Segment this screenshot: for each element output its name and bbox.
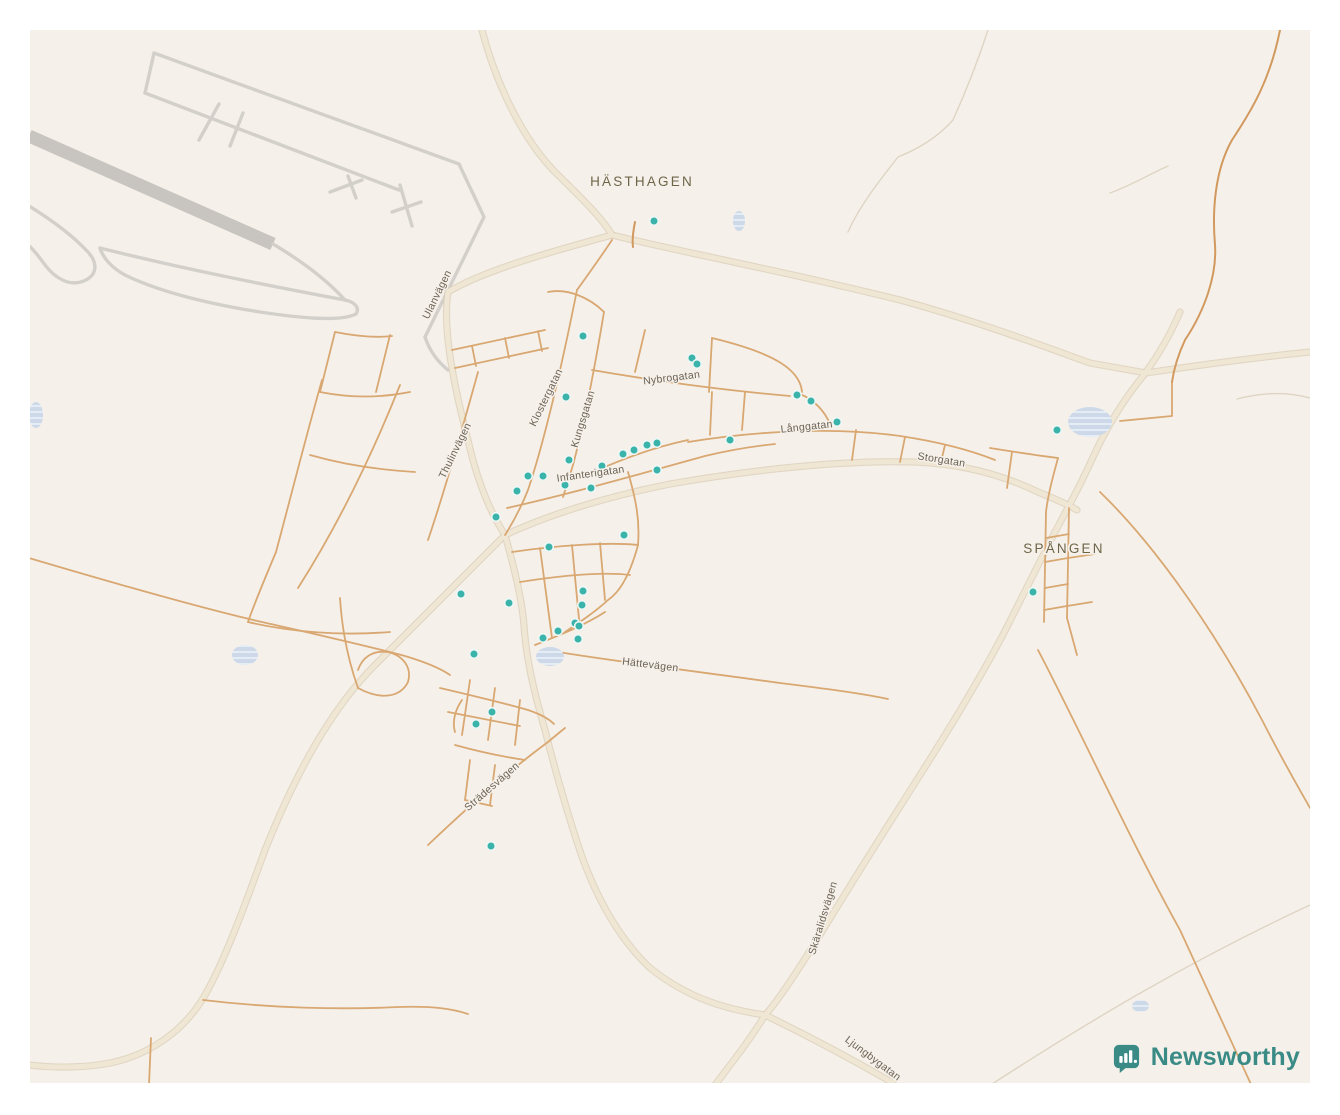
map-marker[interactable] xyxy=(579,587,588,596)
map-marker[interactable] xyxy=(505,599,514,608)
map-marker[interactable] xyxy=(574,635,583,644)
place-label: HÄSTHAGEN xyxy=(590,174,694,189)
map-markers-layer xyxy=(457,217,1062,851)
map-marker[interactable] xyxy=(487,842,496,851)
map-marker[interactable] xyxy=(545,543,554,552)
map-marker[interactable] xyxy=(470,650,479,659)
map-marker[interactable] xyxy=(587,484,596,493)
water-feature xyxy=(1132,1000,1149,1012)
street-label: Kungsgatan xyxy=(569,389,598,449)
map-page: UlanvägenThulinvägenKlostergatanKungsgat… xyxy=(0,0,1340,1115)
map-marker[interactable] xyxy=(619,450,628,459)
map-marker[interactable] xyxy=(726,436,735,445)
water-feature xyxy=(536,647,564,666)
water-feature xyxy=(1068,407,1112,437)
map-marker[interactable] xyxy=(578,601,587,610)
map-marker[interactable] xyxy=(539,472,548,481)
map-marker[interactable] xyxy=(575,622,584,631)
map-marker[interactable] xyxy=(693,360,702,369)
accent-roads-layer xyxy=(599,30,1280,382)
airport-runways xyxy=(30,53,484,370)
map-marker[interactable] xyxy=(554,627,563,636)
map-marker[interactable] xyxy=(524,472,533,481)
map-marker[interactable] xyxy=(833,418,842,427)
place-label: SPÅNGEN xyxy=(1023,541,1104,556)
hasthagen-paddock-oval xyxy=(599,148,693,231)
map-marker[interactable] xyxy=(650,217,659,226)
map-marker[interactable] xyxy=(513,487,522,496)
map-marker[interactable] xyxy=(643,441,652,450)
map-marker[interactable] xyxy=(1029,588,1038,597)
map-marker[interactable] xyxy=(488,708,497,717)
newsworthy-wordmark: Newsworthy xyxy=(1151,1043,1300,1072)
water-feature xyxy=(30,402,43,428)
map-marker[interactable] xyxy=(539,634,548,643)
map-marker[interactable] xyxy=(620,531,629,540)
street-label: Hättevägen xyxy=(621,656,679,675)
newsworthy-bar-chart-icon xyxy=(1111,1042,1142,1073)
map-marker[interactable] xyxy=(472,720,481,729)
map-marker[interactable] xyxy=(562,393,571,402)
map-marker[interactable] xyxy=(457,590,466,599)
map-marker[interactable] xyxy=(653,466,662,475)
map-marker[interactable] xyxy=(492,513,501,522)
water-feature xyxy=(232,645,258,665)
map-marker[interactable] xyxy=(807,397,816,406)
map-marker[interactable] xyxy=(565,456,574,465)
map-marker[interactable] xyxy=(653,439,662,448)
map-marker[interactable] xyxy=(793,391,802,400)
map-marker[interactable] xyxy=(630,446,639,455)
map-marker[interactable] xyxy=(1053,426,1062,435)
street-label: Skäralidsvägen xyxy=(806,880,840,956)
newsworthy-logo[interactable]: Newsworthy xyxy=(1111,1042,1300,1073)
street-label: Klostergatan xyxy=(527,367,565,428)
street-label: Långgatan xyxy=(780,418,833,435)
map-canvas[interactable]: UlanvägenThulinvägenKlostergatanKungsgat… xyxy=(30,30,1310,1083)
water-layer xyxy=(30,211,1149,1012)
map-marker[interactable] xyxy=(579,332,588,341)
water-feature xyxy=(733,211,745,231)
